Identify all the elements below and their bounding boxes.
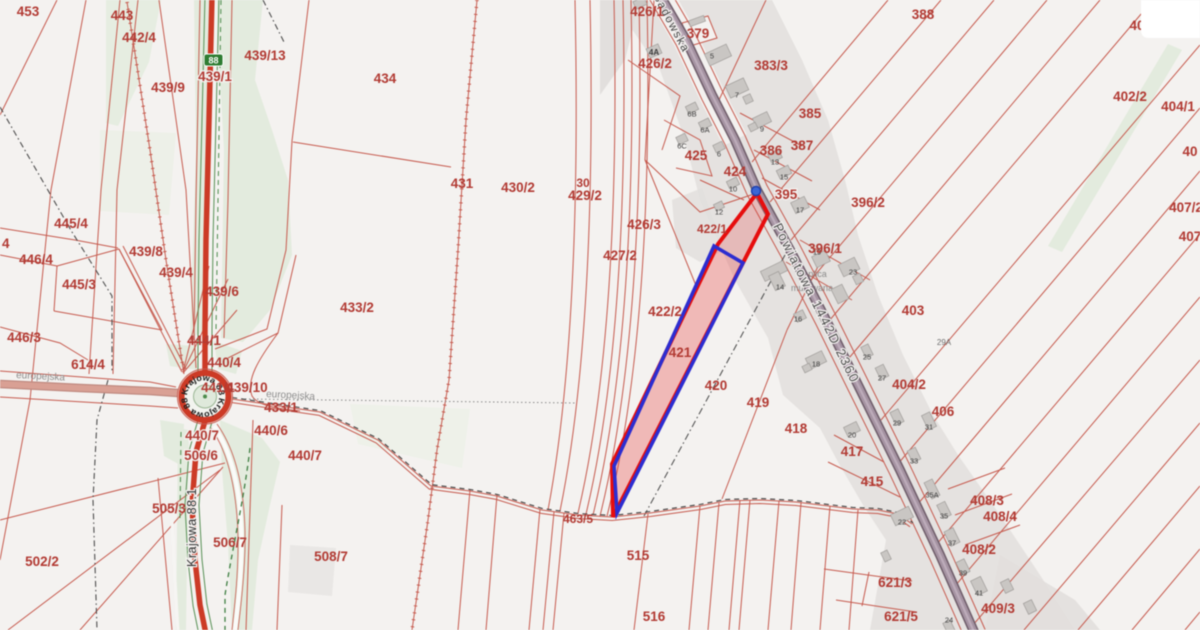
svg-text:16: 16 bbox=[794, 315, 802, 324]
svg-text:27: 27 bbox=[878, 374, 886, 383]
svg-text:383/3: 383/3 bbox=[754, 58, 788, 73]
svg-text:621/3: 621/3 bbox=[878, 575, 912, 590]
svg-text:506/7: 506/7 bbox=[213, 535, 247, 550]
svg-text:426/1: 426/1 bbox=[630, 4, 664, 19]
svg-text:14: 14 bbox=[776, 283, 784, 292]
svg-text:439/8: 439/8 bbox=[129, 244, 163, 259]
svg-text:396/2: 396/2 bbox=[851, 195, 885, 210]
svg-text:18: 18 bbox=[812, 360, 820, 369]
svg-text:446/4: 446/4 bbox=[19, 252, 53, 267]
svg-text:463/5: 463/5 bbox=[563, 512, 593, 526]
svg-text:442/4: 442/4 bbox=[122, 30, 156, 45]
svg-text:440/6: 440/6 bbox=[254, 423, 288, 438]
svg-text:439/1: 439/1 bbox=[198, 69, 232, 84]
svg-text:439/4: 439/4 bbox=[159, 265, 193, 280]
svg-text:35: 35 bbox=[940, 512, 948, 521]
svg-text:6: 6 bbox=[717, 150, 721, 159]
svg-text:440/4: 440/4 bbox=[207, 355, 241, 370]
svg-text:445/4: 445/4 bbox=[54, 216, 88, 231]
svg-text:408/3: 408/3 bbox=[970, 493, 1004, 508]
svg-text:35A: 35A bbox=[925, 491, 938, 500]
svg-text:433/2: 433/2 bbox=[340, 300, 374, 315]
svg-text:426/2: 426/2 bbox=[638, 56, 672, 71]
svg-text:404/1: 404/1 bbox=[1161, 99, 1195, 114]
svg-text:33: 33 bbox=[910, 457, 918, 466]
svg-text:422/1: 422/1 bbox=[697, 222, 727, 236]
svg-text:403: 403 bbox=[902, 303, 925, 318]
svg-text:6A: 6A bbox=[700, 126, 709, 135]
svg-text:17: 17 bbox=[796, 206, 804, 215]
svg-text:4A: 4A bbox=[649, 48, 659, 57]
svg-text:10: 10 bbox=[729, 185, 737, 194]
svg-text:7: 7 bbox=[735, 91, 739, 100]
svg-text:434: 434 bbox=[374, 71, 397, 86]
svg-text:25: 25 bbox=[863, 353, 871, 362]
svg-text:515: 515 bbox=[627, 548, 650, 563]
svg-text:427/2: 427/2 bbox=[603, 248, 637, 263]
svg-text:6B: 6B bbox=[687, 110, 696, 119]
svg-text:421: 421 bbox=[669, 345, 692, 360]
svg-text:396/1: 396/1 bbox=[808, 241, 842, 256]
svg-text:446/3: 446/3 bbox=[7, 330, 41, 345]
svg-text:88: 88 bbox=[208, 56, 218, 66]
svg-text:388: 388 bbox=[912, 7, 935, 22]
svg-text:439/9: 439/9 bbox=[151, 80, 185, 95]
svg-text:439/6: 439/6 bbox=[205, 284, 239, 299]
svg-text:406: 406 bbox=[932, 404, 955, 419]
svg-text:502/2: 502/2 bbox=[25, 554, 59, 569]
svg-text:29: 29 bbox=[893, 419, 901, 428]
svg-text:621/5: 621/5 bbox=[884, 609, 918, 624]
svg-text:379: 379 bbox=[687, 26, 710, 41]
svg-text:29A: 29A bbox=[937, 338, 952, 347]
svg-text:433/1: 433/1 bbox=[264, 400, 298, 415]
svg-text:419: 419 bbox=[747, 395, 770, 410]
svg-text:444/1: 444/1 bbox=[187, 333, 221, 348]
svg-text:420: 420 bbox=[705, 378, 728, 393]
svg-text:407: 407 bbox=[1179, 229, 1200, 244]
svg-text:395: 395 bbox=[775, 187, 798, 202]
svg-text:445/3: 445/3 bbox=[62, 277, 96, 292]
svg-text:39: 39 bbox=[959, 569, 967, 578]
svg-text:12: 12 bbox=[715, 208, 723, 217]
svg-text:37: 37 bbox=[948, 539, 956, 548]
svg-text:20: 20 bbox=[848, 431, 856, 440]
svg-text:15: 15 bbox=[780, 173, 788, 182]
svg-text:386: 386 bbox=[760, 143, 783, 158]
svg-text:439/13: 439/13 bbox=[244, 48, 286, 63]
svg-text:422/2: 422/2 bbox=[648, 304, 682, 319]
svg-text:385: 385 bbox=[799, 106, 822, 121]
svg-text:429/2: 429/2 bbox=[568, 188, 602, 203]
svg-text:418: 418 bbox=[785, 421, 808, 436]
svg-text:516: 516 bbox=[643, 609, 666, 624]
svg-text:41: 41 bbox=[975, 589, 983, 598]
svg-text:440/7: 440/7 bbox=[288, 448, 322, 463]
svg-text:4: 4 bbox=[2, 236, 10, 251]
svg-text:408/4: 408/4 bbox=[983, 509, 1017, 524]
svg-text:22: 22 bbox=[898, 518, 906, 527]
svg-text:40: 40 bbox=[1182, 144, 1197, 159]
svg-text:614/4: 614/4 bbox=[71, 357, 105, 372]
svg-text:417: 417 bbox=[841, 444, 864, 459]
svg-text:13: 13 bbox=[771, 158, 779, 167]
svg-text:506/6: 506/6 bbox=[184, 448, 218, 463]
svg-text:5: 5 bbox=[710, 52, 714, 61]
svg-text:31: 31 bbox=[925, 423, 933, 432]
svg-text:505/3: 505/3 bbox=[152, 501, 186, 516]
svg-text:424: 424 bbox=[724, 164, 747, 179]
svg-text:443: 443 bbox=[111, 8, 134, 23]
svg-text:426/3: 426/3 bbox=[627, 217, 661, 232]
svg-text:409/3: 409/3 bbox=[981, 601, 1015, 616]
svg-text:440/7: 440/7 bbox=[185, 428, 219, 443]
svg-text:431: 431 bbox=[451, 176, 474, 191]
svg-text:415: 415 bbox=[861, 474, 884, 489]
svg-text:453: 453 bbox=[17, 4, 40, 19]
svg-text:430/2: 430/2 bbox=[501, 180, 535, 195]
svg-text:425: 425 bbox=[685, 148, 708, 163]
svg-text:402/2: 402/2 bbox=[1113, 89, 1147, 104]
svg-text:404/2: 404/2 bbox=[892, 377, 926, 392]
svg-text:9: 9 bbox=[760, 125, 764, 134]
svg-text:407/2: 407/2 bbox=[1169, 200, 1200, 215]
svg-text:441/1: 441/1 bbox=[201, 380, 235, 395]
svg-text:508/7: 508/7 bbox=[314, 549, 348, 564]
svg-text:24: 24 bbox=[945, 616, 953, 625]
svg-text:30: 30 bbox=[576, 176, 590, 190]
svg-text:387: 387 bbox=[791, 138, 814, 153]
svg-text:Krajowa 88.1: Krajowa 88.1 bbox=[185, 488, 199, 567]
svg-text:408/2: 408/2 bbox=[962, 542, 996, 557]
